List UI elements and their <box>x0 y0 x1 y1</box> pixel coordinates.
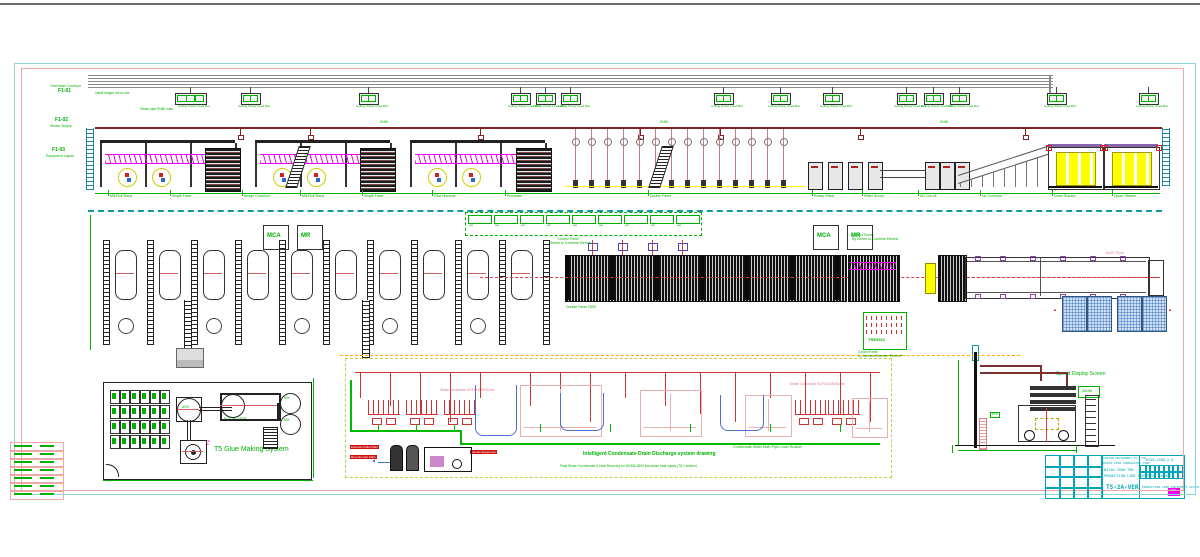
starch-bag-mark <box>152 408 156 414</box>
starch-bag-mark <box>162 438 166 444</box>
hanger-cell <box>959 95 967 102</box>
drop-pipe-circle <box>700 138 708 146</box>
conveyor-lug <box>1060 256 1066 261</box>
bus-stub <box>454 424 455 432</box>
plan-roll-centerline <box>116 273 134 274</box>
steam-valve-pair <box>410 418 420 425</box>
starch-bag-mark <box>162 423 166 429</box>
ceiling-rail <box>88 75 1053 76</box>
machine-name-label: NC Cut-off <box>920 195 936 199</box>
roll-arm-mark <box>282 178 286 182</box>
plan-rail-track <box>103 240 110 345</box>
storage-tank-1 <box>280 393 301 414</box>
revision-text-mark <box>14 461 32 463</box>
starch-bag-mark <box>112 423 116 429</box>
steam-valve-pair <box>424 418 434 425</box>
stacker-centerline <box>1046 408 1047 442</box>
dimension-tick <box>300 190 301 196</box>
steam-manifold-comb <box>795 400 827 415</box>
forklift-glyph <box>176 348 204 368</box>
steam-main-pipe <box>95 127 1162 129</box>
hanger-note: Ceiling Power Feed Box <box>711 105 743 108</box>
hanger-cell <box>545 95 553 102</box>
starch-bag-mark <box>122 423 126 429</box>
glue-dim-vertical <box>313 378 314 478</box>
hanger-cell <box>832 95 840 102</box>
plan-stand-circle <box>382 318 398 334</box>
machine-name-label: Preheater <box>507 195 522 199</box>
starch-bag-mark <box>152 393 156 399</box>
hanger-note: Ceiling Power Feed Box <box>768 105 800 108</box>
bay-post <box>345 143 347 187</box>
conveyor-lug <box>975 256 981 261</box>
conveyor-lug <box>1090 256 1096 261</box>
dimension-tick <box>1052 190 1053 196</box>
machine-ghost-outline <box>640 390 702 437</box>
paper-roll-circle <box>118 168 137 187</box>
slitter-mark <box>850 262 896 270</box>
plan-paper-roll <box>159 250 181 300</box>
conveyor-edge <box>967 292 1146 293</box>
pump-centerline <box>182 451 203 452</box>
dimension-tick <box>862 190 863 196</box>
cad-drawing-canvas: Overhead Conveyor F1-01 F1-02 Steam Supp… <box>0 0 1200 557</box>
drop-pipe-circle <box>652 138 660 146</box>
machine-ghost-line <box>768 399 769 431</box>
starch-bag-mark <box>142 423 146 429</box>
drop-pipe-circle <box>780 138 788 146</box>
condensate-bus <box>460 443 880 445</box>
plan-rail-track <box>543 240 550 345</box>
finishing-machine-mark <box>928 166 935 168</box>
pipe-fitting <box>588 243 598 251</box>
right-edge-ladder <box>1162 128 1170 186</box>
plan-roll-centerline <box>292 273 310 274</box>
bus-stub <box>610 424 611 432</box>
steam-valve-pair <box>372 418 382 425</box>
pipe-fitting <box>678 243 688 251</box>
hanger-note: Ceiling Power Feed Box <box>1136 105 1168 108</box>
finishing-machine-mark <box>831 166 838 168</box>
conveyor-lug <box>1000 294 1006 299</box>
plan-paper-roll <box>247 250 269 300</box>
finishing-machine-mark <box>871 166 878 168</box>
revision-text-mark <box>14 493 32 495</box>
revision-text-mark <box>14 485 32 487</box>
machine-name-label: Down Stacker <box>1054 195 1076 199</box>
steam-valve-pair <box>448 418 458 425</box>
machine-name-label: Rotary Shear <box>814 195 835 199</box>
dimension-tick <box>812 190 813 196</box>
side-ladder-rung <box>1086 423 1096 424</box>
drop-pipe-circle <box>588 138 596 146</box>
hanger-cell <box>250 95 258 102</box>
ramp-post <box>960 182 961 187</box>
side-ladder-rung <box>1086 399 1096 400</box>
drop-pipe-circle <box>572 138 580 146</box>
starch-bag-mark <box>122 408 126 414</box>
ramp-post <box>1004 168 1005 187</box>
wet-end-machine <box>516 148 552 192</box>
roll-arm-mark <box>159 173 163 177</box>
starch-bag-mark <box>142 438 146 444</box>
hanger-note: Ceiling Power Feed Box <box>820 105 852 108</box>
drop-pipe-circle <box>764 138 772 146</box>
plan-cell-note: set <box>573 224 577 227</box>
bay-top-rail <box>410 140 545 143</box>
steam-valve <box>1023 135 1029 140</box>
finishing-machine-mark <box>851 166 858 168</box>
pipe-fitting <box>618 243 628 251</box>
condensate-pump-circle <box>452 459 462 469</box>
roll-arm-mark <box>471 178 475 182</box>
bay-post <box>255 143 257 187</box>
plan-cabinet-label: MR <box>301 233 310 240</box>
side-dim-line <box>958 360 959 445</box>
side-ladder-rung <box>1086 441 1096 442</box>
plan-cell-note: set <box>599 224 603 227</box>
pump-drop-line <box>187 420 188 440</box>
pallet-stack <box>1117 296 1142 332</box>
steam-valve <box>238 135 244 140</box>
paper-roll-circle <box>152 168 171 187</box>
drop-pipe-circle <box>620 138 628 146</box>
cutoff-section <box>938 255 967 302</box>
plan-roll-centerline <box>248 273 266 274</box>
machine-name-label: Bridge Conveyor <box>244 195 270 199</box>
drop-pipe-circle <box>604 138 612 146</box>
orange-datum-line <box>340 355 1020 357</box>
hanger-cell <box>780 95 788 102</box>
side-top-pipe <box>980 365 1042 367</box>
hanger-note: Ceiling Power Feed Box <box>947 105 979 108</box>
pump-drop-line <box>190 420 191 440</box>
plan-rail-track <box>455 240 462 345</box>
roll-arm-mark <box>280 173 284 177</box>
machine-name-label: Mill Roll Stand <box>302 195 324 199</box>
conveyor-lug <box>1120 256 1126 261</box>
side-ground-line <box>955 445 1115 446</box>
machine-name-label: Slitter Scorer <box>864 195 884 199</box>
plan-paper-roll <box>291 250 313 300</box>
condensate-inlet-pipe <box>378 462 390 463</box>
steam-riser <box>625 373 626 398</box>
condensate-arrow: ◀ <box>372 459 375 463</box>
revision-text-mark <box>14 477 32 479</box>
steam-valve-pair <box>386 418 396 425</box>
hanger-cell <box>933 95 941 102</box>
hanger-cell <box>1148 95 1156 102</box>
drop-pipe-circle <box>684 138 692 146</box>
plan-roll-centerline <box>512 273 530 274</box>
ramp-post <box>971 179 972 187</box>
dimension-tick <box>362 190 363 196</box>
finishing-machine-mark <box>958 166 965 168</box>
hanger-cell <box>520 95 528 102</box>
agitator-circle <box>177 398 201 422</box>
pallet-arrow: ▲ <box>1053 308 1057 312</box>
steam-valve <box>858 135 864 140</box>
hanger-cell <box>906 95 914 102</box>
hanger-note: Ceiling Power Feed Box <box>238 105 270 108</box>
plan-rail-track <box>235 240 242 345</box>
machine-ghost-line <box>869 402 870 432</box>
ceiling-rail <box>88 81 1053 82</box>
side-dim-tick <box>1076 445 1077 453</box>
drop-pipe-circle <box>716 138 724 146</box>
tre-panel-row <box>866 316 902 320</box>
conveyor-lug <box>1030 256 1036 261</box>
agitator-centerline <box>177 409 199 410</box>
bay-post <box>455 143 457 187</box>
dimension-tick <box>242 190 243 196</box>
stacker-top-rail <box>1104 144 1158 147</box>
roll-arm-mark <box>437 178 441 182</box>
dimension-tick <box>170 190 171 196</box>
belt-line <box>880 177 925 178</box>
dimension-tick <box>918 190 919 196</box>
revision-text-mark <box>40 453 54 455</box>
machine-name-label: Single Facer <box>364 195 384 199</box>
plan-rail-track <box>411 240 418 345</box>
starch-bag-mark <box>132 393 136 399</box>
bus-stub <box>540 424 541 432</box>
titleblock-sign-cell <box>1177 471 1184 479</box>
steam-valve-pair <box>799 418 809 425</box>
dimension-tick <box>1112 190 1113 196</box>
bay-post <box>145 143 147 187</box>
plan-rail-track <box>191 240 198 345</box>
floor-yellow-line <box>565 186 805 187</box>
revision-text-mark <box>14 445 32 447</box>
side-ladder-rung <box>1086 429 1096 430</box>
plan-roll-centerline <box>468 273 486 274</box>
titleblock-cell <box>1087 487 1103 500</box>
stacker-top-rail <box>1048 144 1102 147</box>
drop-pipe-circle <box>668 138 676 146</box>
starch-bag-mark <box>162 408 166 414</box>
stacker-wheel <box>1058 430 1069 441</box>
roll-arm-mark <box>314 173 318 177</box>
dimension-tick <box>505 190 506 196</box>
platen-bar <box>1030 400 1076 404</box>
bus-stub <box>690 424 691 432</box>
hanger-note: Ceiling Power Feed Box <box>1044 105 1076 108</box>
plan-stand-circle <box>470 318 486 334</box>
revision-text-mark <box>40 485 54 487</box>
condensate-unit-panel <box>430 456 444 467</box>
bay-post <box>100 143 102 187</box>
plan-roll-centerline <box>380 273 398 274</box>
pallet-stack <box>1062 296 1087 332</box>
mixer-circle <box>221 394 245 418</box>
ramp-post <box>1015 165 1016 187</box>
drop-pipe-circle <box>732 138 740 146</box>
machine-ghost-line <box>670 394 671 431</box>
bay-post <box>500 143 502 187</box>
plan-cabinet-label: MCA <box>817 233 831 240</box>
yellow-stack <box>925 263 936 294</box>
condensate-bus <box>350 430 462 432</box>
ceiling-rail <box>88 78 1053 79</box>
glue-stairs <box>263 427 278 449</box>
hanger-note: Ceiling Power Feed Box <box>178 105 210 108</box>
condensate-loop <box>560 393 604 431</box>
plan-stand-circle <box>294 318 310 334</box>
condensate-tank <box>406 445 419 471</box>
starch-bag-mark <box>112 408 116 414</box>
plan-cell-note: set <box>521 224 525 227</box>
conveyor-lug <box>1000 256 1006 261</box>
paper-roll-circle <box>307 168 326 187</box>
plan-paper-roll <box>335 250 357 300</box>
plan-paper-roll <box>423 250 445 300</box>
steam-manifold-comb <box>406 400 438 415</box>
stacker-base <box>1104 186 1158 188</box>
side-ladder-rails <box>1085 395 1099 447</box>
bus-stub <box>416 424 417 432</box>
revision-text-mark <box>40 469 54 471</box>
starch-bag-mark <box>132 408 136 414</box>
tank-link <box>277 403 281 421</box>
plan-cell-note: set <box>469 224 473 227</box>
plan-roll-centerline <box>336 273 354 274</box>
roll-arm-mark <box>161 178 165 182</box>
stacker-base <box>1048 186 1102 188</box>
pallet-arrow: ▲ <box>1168 308 1172 312</box>
stacker-corner-mark <box>1102 145 1108 151</box>
drop-pipe-circle <box>636 138 644 146</box>
starch-bag-mark <box>122 393 126 399</box>
condensate-tank <box>390 445 403 471</box>
starch-bag-mark <box>142 393 146 399</box>
side-top-pipe-2-drop <box>1066 372 1068 386</box>
hanger-cell <box>368 95 376 102</box>
pallet-stack <box>1142 296 1167 332</box>
top-rule-line <box>0 3 1200 5</box>
pipe-fitting <box>648 243 658 251</box>
ramp-post <box>993 172 994 187</box>
plan-paper-roll <box>115 250 137 300</box>
machine-name-label: Single Facer <box>172 195 192 199</box>
conveyor-lug <box>975 294 981 299</box>
roll-arm-mark <box>435 173 439 177</box>
starch-bag-mark <box>122 438 126 444</box>
mixer-centerline <box>220 405 277 406</box>
bay-post <box>190 143 192 187</box>
pipe-size-note: DN65 <box>940 121 948 125</box>
starch-bag-mark <box>132 423 136 429</box>
steam-header-line <box>355 372 880 373</box>
side-column <box>974 352 977 448</box>
bay-top-rail <box>255 140 390 143</box>
hanger-cell <box>194 95 204 102</box>
side-ladder-rung <box>1086 405 1096 406</box>
pipe-size-note: DN80 <box>380 121 388 125</box>
dimension-tick <box>980 190 981 196</box>
stacker-yellow-panel <box>1112 152 1152 186</box>
machine-name-label: Double Facer <box>650 195 671 199</box>
machine-name-label: Glue Machine <box>434 195 456 199</box>
plan-dim-vertical <box>90 215 91 350</box>
steam-valve-pair <box>813 418 823 425</box>
belt-line <box>880 170 925 171</box>
starch-bag-mark <box>152 423 156 429</box>
stacker-corner-mark <box>1046 145 1052 151</box>
hanger-cell <box>570 95 578 102</box>
starch-bag-mark <box>112 393 116 399</box>
bay-top-rail <box>100 140 235 143</box>
plan-down-conveyor <box>362 300 370 358</box>
drop-pipe-circle <box>748 138 756 146</box>
machine-name-label: Up Conveyor <box>982 195 1002 199</box>
side-ladder-rung <box>1086 435 1096 436</box>
plan-paper-roll <box>467 250 489 300</box>
condensate-bus <box>350 380 352 432</box>
side-dim-bottom <box>958 450 1076 451</box>
plan-stand-circle <box>118 318 134 334</box>
machine-name-label: Upper Stacker <box>1114 195 1136 199</box>
starch-bag-mark <box>142 408 146 414</box>
starch-bag-mark <box>132 438 136 444</box>
bay-post <box>410 143 412 187</box>
condensate-loop <box>720 395 764 431</box>
revision-text-mark <box>40 493 54 495</box>
side-ladder-rung <box>1086 411 1096 412</box>
ramp-post <box>1037 158 1038 187</box>
pallet-stack <box>1087 296 1112 332</box>
tre-panel-row <box>866 330 902 334</box>
storage-tank-2 <box>280 414 301 435</box>
dimension-tick <box>108 190 109 196</box>
conveyor-lug <box>1030 294 1036 299</box>
plan-rail-track <box>323 240 330 345</box>
ramp-post <box>982 175 983 187</box>
plan-cabinet-label: MR <box>851 233 860 240</box>
condensate-loop <box>475 385 517 436</box>
plan-stand-circle <box>206 318 222 334</box>
steam-valve-pair <box>462 418 472 425</box>
plan-rail-track <box>499 240 506 345</box>
pipe-size-note: DN80 <box>660 121 668 125</box>
plan-paper-roll <box>511 250 533 300</box>
plan-cell-note: set <box>547 224 551 227</box>
hanger-note: Ceiling Power Feed Box <box>356 105 388 108</box>
stacker-yellow-panel <box>1056 152 1096 186</box>
revision-text-mark <box>14 453 32 455</box>
left-edge-ladder <box>86 128 94 190</box>
hanger-cell <box>723 95 731 102</box>
plan-paper-roll <box>203 250 225 300</box>
plan-rail-track <box>279 240 286 345</box>
plan-cell-note: set <box>625 224 629 227</box>
bus-stub <box>840 424 841 432</box>
roll-arm-mark <box>127 178 131 182</box>
plan-paper-roll <box>379 250 401 300</box>
roll-arm-mark <box>469 173 473 177</box>
condensate-bus <box>460 430 462 444</box>
plan-cell-note: set <box>677 224 681 227</box>
bus-stub <box>770 424 771 432</box>
conveyor-joint <box>1040 258 1041 296</box>
revision-text-mark <box>40 445 54 447</box>
finishing-machine-mark <box>811 166 818 168</box>
steam-riser <box>360 373 361 398</box>
glue-dim-bottom <box>103 480 313 481</box>
plan-roll-centerline <box>204 273 222 274</box>
starch-bag-mark <box>112 438 116 444</box>
revision-text-mark <box>14 469 32 471</box>
